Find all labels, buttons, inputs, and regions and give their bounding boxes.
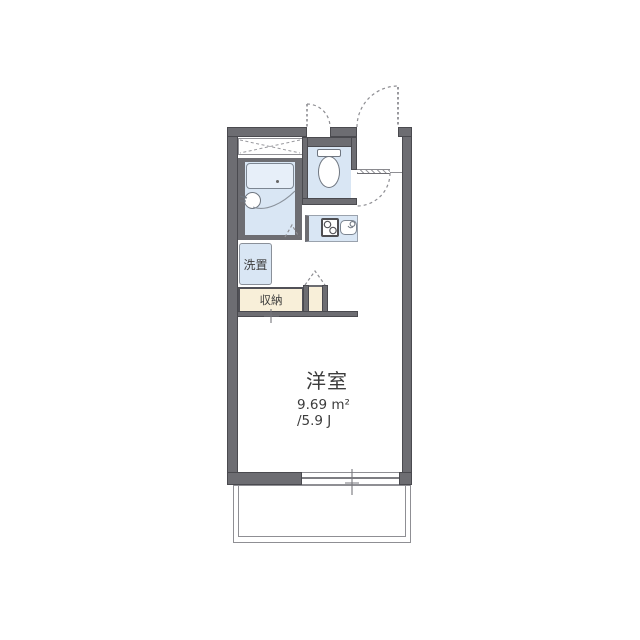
toilet-window-arc [307,104,330,127]
toilet-wall-top [302,137,357,147]
toilet-bowl-icon [318,156,340,188]
folding-door-mark-closet [305,271,325,285]
bottom-window [302,472,399,485]
stove-icon [321,218,339,237]
genkan-step-line [390,172,402,173]
main-room-label: 洋室 [297,365,357,394]
closet-label: 収納 [260,292,283,308]
closet-box: 収納 [238,287,304,313]
kitchen-sink-icon [340,220,357,235]
closet-side-box [309,287,322,313]
bathtub-drain-dot [276,180,279,183]
wall-left [227,127,238,485]
main-room-area-tatami: /5.9 J [297,413,357,429]
toilet-wall-bottom [302,198,357,205]
partition-wall [227,311,358,317]
main-room-area-m2: 9.69 m² [297,397,357,413]
toilet-wall-right [351,137,357,170]
wall-right [402,127,412,485]
wall-top-c [398,127,412,137]
main-room-text: 洋室 9.69 m² /5.9 J [297,365,357,429]
wall-bottom-right [399,472,412,485]
washer-space-box: 洗置 [239,243,272,285]
washbasin-icon [244,192,261,209]
wall-bottom-left [227,472,302,485]
wall-top-b [330,127,357,137]
symbol-overlay [0,0,640,640]
entrance-door-arc [357,86,398,127]
balcony-inner-rail [238,485,406,537]
bathtub [246,163,294,189]
hatched-cabinet-box [238,138,303,155]
bottom-window-rail [302,477,399,479]
floorplan-canvas: 洗置 収納 洋室 9.69 m² /5.9 J [0,0,640,640]
wall-top-a [227,127,307,137]
toilet-door-arc [357,173,390,206]
genkan-step [357,169,390,174]
washer-space-label: 洗置 [243,256,267,273]
